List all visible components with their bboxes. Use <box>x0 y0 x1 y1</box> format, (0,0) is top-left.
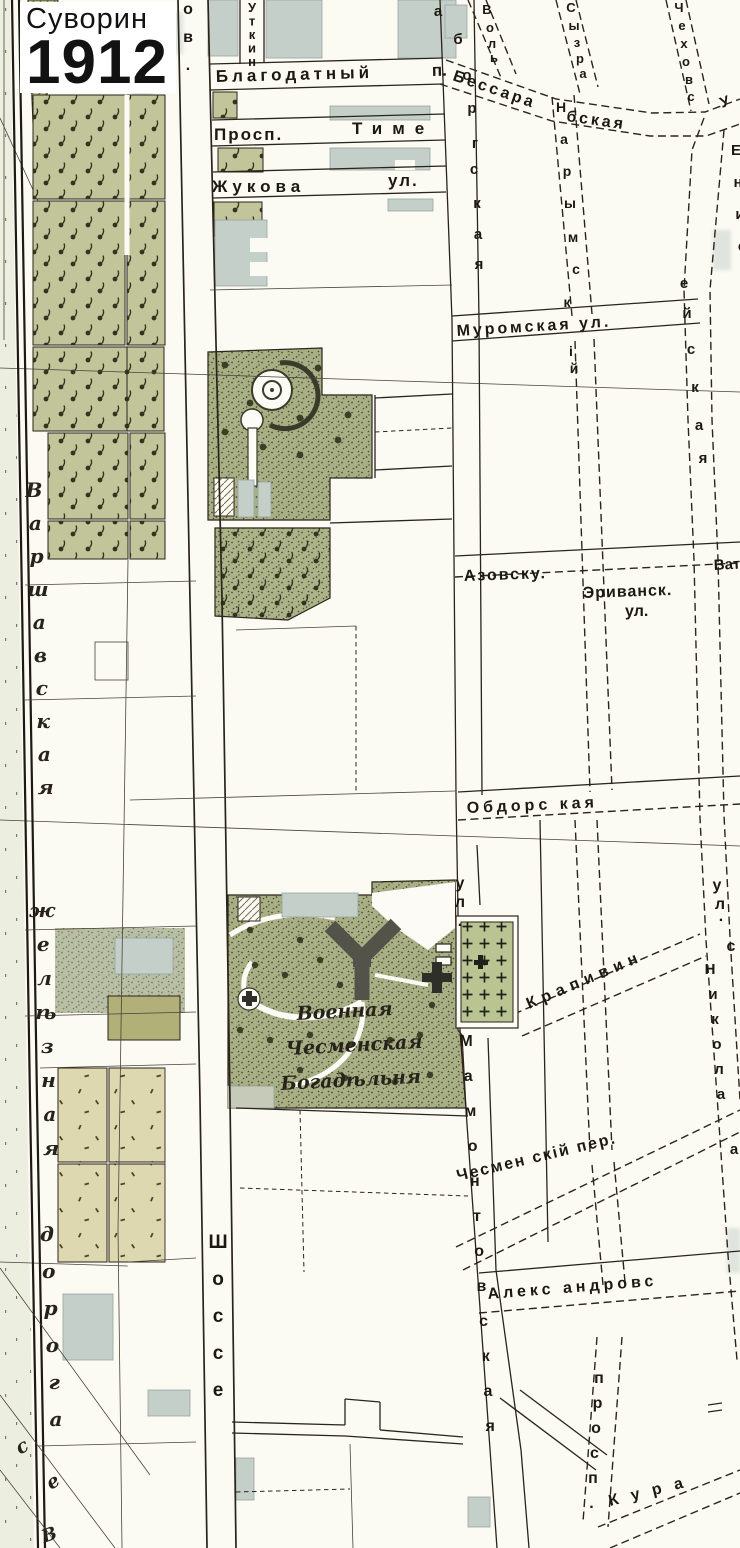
label-mamontovskaya-0: М <box>459 1033 472 1050</box>
label-nikola-1: и <box>708 986 717 1003</box>
label-eiskaya-2: с <box>687 341 695 358</box>
label-varshavskaya-9: я <box>38 775 54 799</box>
label-eiskaya-5: я <box>699 450 708 467</box>
label-aborgskaya-1: б <box>453 31 462 48</box>
label-syzranskaya-1: ы <box>568 18 579 33</box>
label-aborgskaya-6: к <box>473 195 481 212</box>
almshouse-center <box>353 949 371 967</box>
label-aborgskaya-2: о <box>462 67 471 84</box>
city-map-1912: Благодатныйп.Просп.ТимеЖуковаул.Муромска… <box>0 0 740 1548</box>
label-varshavskaya-3: ш <box>27 577 48 601</box>
label-ul-s-2: . <box>719 908 723 925</box>
label-aleksandrovskaya: Алекс андровс <box>487 1273 658 1303</box>
label-varshavskaya-8: а <box>38 742 51 766</box>
label-narymsky-0: Н <box>556 99 566 115</box>
label-shosse-4: е <box>213 1380 224 1401</box>
label-syzranskaya-2: з <box>574 35 581 50</box>
label-zhukova-ul: ул. <box>388 171 419 190</box>
label-shosse-2: с <box>213 1306 224 1327</box>
label-zheleznaya-7: я <box>43 1136 59 1160</box>
label-doroga-0: д <box>40 1222 54 1246</box>
label-zheleznaya-3: ѣ <box>35 1000 56 1024</box>
label-syzranskaya-4: а <box>579 66 587 81</box>
label-zheleznaya-5: н <box>41 1068 56 1092</box>
garden-block <box>215 528 330 620</box>
label-prospekt-4: п <box>588 1470 598 1487</box>
label-chekhovskaya-4: в <box>685 72 693 87</box>
cemetery <box>456 916 518 1028</box>
label-narymsky-4: м <box>568 229 578 245</box>
label-narymsky-3: ы <box>564 195 576 211</box>
label-doroga-3: о <box>46 1333 59 1357</box>
label-eiskaya-1: й <box>682 305 691 322</box>
label-narymsky-6: к <box>563 294 571 310</box>
label-se-diagonal-1: е <box>42 1469 63 1494</box>
label-mamontovskaya-10: а <box>484 1383 493 1400</box>
label-eiskaya-3: к <box>691 379 699 396</box>
label-narymsky-5: с <box>572 261 580 277</box>
label-zheleznaya-0: ж <box>29 898 56 922</box>
label-mamontovskaya-5: т <box>473 1208 481 1225</box>
label-ov-2: . <box>186 57 190 74</box>
label-aborgskaya-5: с <box>470 161 478 178</box>
upper-park <box>208 348 372 520</box>
label-doroga-1: о <box>42 1259 55 1283</box>
label-chekhovskaya-5: с <box>687 89 694 104</box>
label-utkin-4: н <box>248 54 256 69</box>
label-mamontovskaya-ul-0: у <box>456 875 465 892</box>
label-blagodatny-p: п. <box>432 61 447 80</box>
label-nikola-0: Н <box>705 961 716 978</box>
label-enis-1: н <box>733 174 740 191</box>
title-block: Суворин 1912 <box>20 2 176 93</box>
label-shosse-0: Ш <box>208 1232 227 1253</box>
label-prospekt-5: . <box>589 1495 593 1512</box>
label-shosse-1: о <box>212 1269 224 1290</box>
label-narymsky-7: і <box>569 343 573 359</box>
label-narymsky-1: а <box>560 131 568 147</box>
label-nikola-5: а <box>717 1086 726 1103</box>
label-aborgskaya-7: а <box>474 226 483 243</box>
label-prospekt-3: с <box>590 1445 599 1462</box>
label-nikola-4: л <box>714 1061 724 1078</box>
label-nikola-2: к <box>711 1011 719 1028</box>
label-aborgskaya-3: р <box>467 100 476 117</box>
label-zheleznaya-1: е <box>37 932 50 956</box>
label-obdorskaya: Обдорс кая <box>466 794 598 817</box>
label-ov-0: о <box>183 1 193 18</box>
label-chekhovskaya-3: о <box>682 54 690 69</box>
label-chekhovskaya-1: е <box>678 18 685 33</box>
label-prospekt-0: п <box>594 1370 604 1387</box>
label-volskaya-2: л <box>488 36 496 51</box>
label-mamontovskaya-7: в <box>476 1278 486 1295</box>
label-erivansk: Эриванск. <box>583 582 673 602</box>
label-varshavskaya-1: а <box>29 511 42 535</box>
label-vat: Ват <box>713 556 740 574</box>
courtyard-gardens <box>213 92 263 236</box>
label-varshavskaya-5: в <box>34 643 47 667</box>
label-mamontovskaya-3: о <box>468 1138 478 1155</box>
label-shosse-3: с <box>213 1343 224 1364</box>
label-nikola-3: о <box>712 1036 721 1053</box>
label-mamontovskaya-4: н <box>470 1173 480 1190</box>
label-prosp: Просп. <box>214 125 283 144</box>
label-eiskaya-0: е <box>680 275 688 292</box>
label-mamontovskaya-ul-2: . <box>458 913 462 930</box>
label-enis-2: и <box>735 206 740 223</box>
label-prospekt-1: р <box>593 1395 603 1412</box>
label-aborgskaya-8: я <box>475 256 484 273</box>
label-zheleznaya-2: л <box>37 966 52 990</box>
label-volskaya-1: о <box>486 20 494 35</box>
label-aborgskaya-4: г <box>472 135 478 152</box>
label-narymsky-8: й <box>570 360 579 376</box>
label-aborgskaya-0: а <box>434 3 443 20</box>
label-zheleznaya-6: а <box>43 1102 56 1126</box>
label-mamontovskaya-2: м <box>464 1103 476 1120</box>
label-enis-0: Е <box>731 142 740 159</box>
label-bessarabskaya-2: бская <box>565 108 627 133</box>
label-zheleznaya-4: з <box>41 1034 54 1058</box>
label-volskaya-3: ь <box>490 50 498 65</box>
label-mamontovskaya-8: с <box>479 1313 488 1330</box>
label-time: Тиме <box>352 119 434 138</box>
label-eiskaya-4: а <box>695 417 704 434</box>
label-ul-s-3: с <box>727 938 736 955</box>
label-varshavskaya-0: В <box>25 478 43 502</box>
label-prospekt-2: о <box>591 1420 601 1437</box>
label-nikola-6: а <box>730 1141 739 1158</box>
label-ul-s-0: у <box>713 877 722 894</box>
label-blagodatny: Благодатный <box>216 63 374 86</box>
label-doroga-5: а <box>50 1407 63 1431</box>
label-chekhovskaya-2: х <box>680 36 688 51</box>
label-ov-1: в <box>183 29 193 46</box>
label-doroga-2: р <box>44 1296 58 1320</box>
orchard-blocks <box>33 95 165 559</box>
chapel <box>238 988 260 1010</box>
label-doroga-4: г <box>49 1370 61 1394</box>
label-narymsky-2: р <box>563 163 572 179</box>
label-zhukova: Жукова <box>211 177 305 196</box>
label-varshavskaya-2: р <box>30 544 44 568</box>
label-syzranskaya-3: р <box>576 51 584 66</box>
label-volskaya-0: В <box>482 2 491 17</box>
label-varshavskaya-4: а <box>33 610 46 634</box>
map-canvas: Благодатныйп.Просп.ТимеЖуковаул.Муромска… <box>0 0 740 1548</box>
label-azovskaya: Азовску. <box>464 565 548 585</box>
label-mamontovskaya-ul-1: л <box>455 894 465 911</box>
label-syzranskaya-0: С <box>566 0 576 15</box>
label-chekhovskaya-0: Ч <box>674 0 683 15</box>
label-mamontovskaya-11: я <box>485 1418 495 1435</box>
label-kura: Кура <box>607 1472 698 1510</box>
label-varshavskaya-6: с <box>36 676 48 700</box>
label-mamontovskaya-6: о <box>474 1243 484 1260</box>
map-year: 1912 <box>26 34 168 93</box>
label-erivansk-ul: ул. <box>625 603 648 620</box>
label-varshavskaya-7: к <box>36 709 50 733</box>
label-mamontovskaya-9: к <box>482 1348 491 1365</box>
label-mamontovskaya-1: а <box>464 1068 473 1085</box>
